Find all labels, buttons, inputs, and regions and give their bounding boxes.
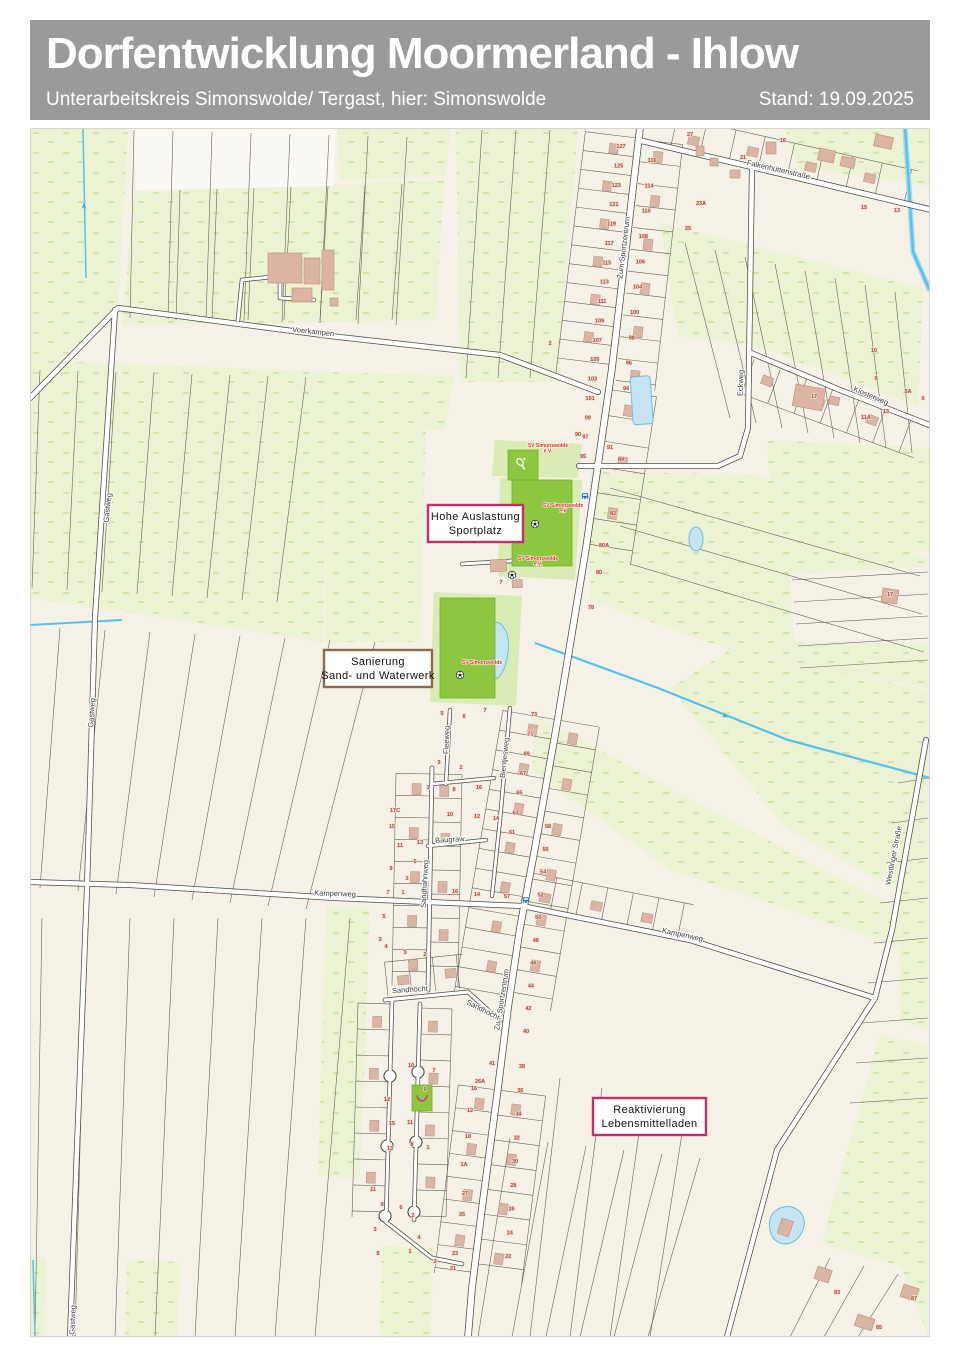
house-number: 32 bbox=[514, 1135, 520, 1141]
pond bbox=[689, 527, 703, 551]
house-number: 10 bbox=[408, 1063, 414, 1069]
house-number: 100 bbox=[630, 310, 639, 316]
house-number: 23A bbox=[696, 201, 706, 207]
house-number: 12 bbox=[384, 1097, 390, 1103]
svg-text:Hohe Auslastung: Hohe Auslastung bbox=[431, 511, 520, 523]
house-number: 3 bbox=[437, 760, 440, 766]
house-number: 83 bbox=[834, 1290, 840, 1296]
house-number: 6 bbox=[462, 714, 465, 720]
svg-text:Sand- und Waterwerk: Sand- und Waterwerk bbox=[321, 670, 435, 682]
svg-text:Sportplatz: Sportplatz bbox=[449, 525, 503, 537]
house-number: 125 bbox=[614, 163, 623, 169]
house-number: 16 bbox=[452, 889, 458, 895]
house-number: 44 bbox=[528, 983, 535, 989]
pond bbox=[630, 376, 653, 425]
house-number: 27 bbox=[462, 1191, 468, 1197]
house-number: 115 bbox=[602, 260, 611, 266]
house-number: 52 bbox=[538, 892, 544, 898]
annotation-lebensmittelladen: ReaktivierungLebensmittelladen bbox=[593, 1098, 706, 1135]
house-number: 80 bbox=[596, 570, 602, 576]
house-number: 6 bbox=[399, 1205, 402, 1211]
house-number: 9 bbox=[874, 376, 877, 382]
house-number: 1 bbox=[426, 785, 429, 791]
street-label: Gastweg bbox=[67, 1305, 78, 1335]
house-number: 11 bbox=[370, 1187, 376, 1193]
house-number: 7 bbox=[432, 1068, 435, 1074]
house-number: 94 bbox=[623, 386, 630, 392]
building bbox=[322, 250, 334, 290]
house-number: 90 bbox=[575, 432, 581, 438]
soccer-ball-icon bbox=[508, 571, 516, 579]
building bbox=[490, 559, 507, 572]
house-number: 24 bbox=[507, 1230, 514, 1236]
house-number: 2 bbox=[411, 1213, 414, 1219]
house-number: 103 bbox=[588, 377, 597, 383]
house-number: 61 bbox=[509, 830, 515, 836]
house-number: 123 bbox=[612, 183, 621, 189]
street-label: Kampenweg bbox=[314, 888, 356, 898]
house-number: 18 bbox=[465, 1134, 471, 1140]
house-number: 12 bbox=[467, 1108, 473, 1114]
house-number: 23 bbox=[452, 1251, 458, 1257]
building bbox=[829, 396, 840, 406]
house-number: 110 bbox=[642, 209, 651, 215]
map-canvas: 1271251231211191171151131111091071051031… bbox=[30, 128, 930, 1337]
house-number: 13 bbox=[883, 409, 889, 415]
house-number: 16 bbox=[476, 785, 482, 791]
house-number: 9 bbox=[423, 1087, 426, 1093]
house-number: 15 bbox=[389, 1121, 395, 1127]
house-number: 12 bbox=[474, 814, 480, 820]
house-number: 22 bbox=[505, 1254, 511, 1260]
svg-text:Sanierung: Sanierung bbox=[351, 656, 405, 668]
house-number: 36 bbox=[517, 1088, 523, 1094]
house-number: 1 bbox=[426, 1145, 429, 1151]
house-number: 5 bbox=[376, 1251, 379, 1257]
map-svg: 1271251231211191171151131111091071051031… bbox=[30, 128, 930, 1337]
house-number: 65 bbox=[516, 791, 522, 797]
house-number: 14 bbox=[474, 892, 481, 898]
house-number: 13 bbox=[417, 840, 423, 846]
house-number: 46 bbox=[530, 961, 536, 967]
house-number: 111 bbox=[598, 299, 607, 305]
house-number: 38 bbox=[519, 1064, 525, 1070]
house-number: 95 bbox=[580, 454, 586, 460]
house-number: 99 bbox=[585, 415, 591, 421]
house-number: 17 bbox=[811, 394, 817, 400]
house-number: 10 bbox=[447, 812, 453, 818]
annotation-waterwerk: SanierungSand- und Waterwerk bbox=[321, 650, 435, 687]
house-number: 7 bbox=[499, 580, 502, 586]
house-number: 21 bbox=[740, 155, 746, 161]
house-number: 2 bbox=[423, 952, 426, 958]
soccer-field-south bbox=[440, 598, 495, 698]
house-number: 58 bbox=[545, 824, 551, 830]
house-number: 101 bbox=[586, 396, 595, 402]
house-number: 73 bbox=[531, 712, 537, 718]
house-number: 5A bbox=[904, 389, 911, 395]
house-number: 7 bbox=[386, 890, 389, 896]
house-number: 10 bbox=[871, 348, 877, 354]
house-number: 27 bbox=[687, 132, 693, 138]
house-number: 127 bbox=[616, 144, 625, 150]
house-number: 114 bbox=[645, 183, 655, 189]
house-number: 67 bbox=[520, 771, 526, 777]
house-number: 50 bbox=[535, 915, 541, 921]
house-number: 113 bbox=[600, 280, 609, 286]
sv-simonswolde-label: SV Simonswolde bbox=[462, 660, 503, 666]
house-number: 82 bbox=[610, 511, 616, 517]
house-number: 5 bbox=[413, 859, 416, 865]
house-number: 2 bbox=[433, 1259, 436, 1265]
svg-text:Lebensmittelladen: Lebensmittelladen bbox=[601, 1118, 697, 1130]
house-number: 14 bbox=[493, 816, 500, 822]
building bbox=[696, 146, 704, 156]
header-date: Stand: 19.09.2025 bbox=[759, 89, 914, 111]
house-number: 106 bbox=[636, 259, 645, 265]
house-number: 78 bbox=[588, 605, 594, 611]
building bbox=[710, 158, 718, 166]
house-number: 3 bbox=[378, 937, 381, 943]
house-number: 108 bbox=[639, 234, 648, 240]
house-number: 8 bbox=[452, 787, 455, 793]
house-number: 48 bbox=[533, 938, 539, 944]
bus-stop-icon bbox=[523, 897, 529, 903]
house-number: 109 bbox=[595, 318, 604, 324]
building bbox=[792, 384, 825, 411]
house-number: 9 bbox=[389, 866, 392, 872]
house-number: 8 bbox=[410, 1142, 413, 1148]
house-number: 41 bbox=[489, 1061, 495, 1067]
house-number: 5 bbox=[440, 711, 443, 717]
house-number: 104 bbox=[633, 285, 643, 291]
house-number: 63 bbox=[513, 810, 519, 816]
house-number: 42 bbox=[525, 1006, 531, 1012]
building bbox=[766, 142, 776, 154]
bus-stop-icon bbox=[582, 493, 588, 499]
house-number: 1A bbox=[460, 1162, 467, 1168]
annotation-sportplatz: Hohe AuslastungSportplatz bbox=[428, 505, 523, 542]
house-number: 56 bbox=[542, 847, 548, 853]
house-number: 17 bbox=[887, 592, 893, 598]
playground-green bbox=[412, 1085, 432, 1111]
building bbox=[330, 298, 338, 306]
house-number: 26 bbox=[508, 1207, 514, 1213]
house-number: 97 bbox=[582, 435, 588, 441]
house-number: 71 bbox=[527, 732, 533, 738]
house-number: 13 bbox=[387, 1146, 393, 1152]
house-number: 116 bbox=[648, 158, 657, 164]
house-number: 25 bbox=[685, 226, 691, 232]
house-number: 16 bbox=[780, 138, 786, 144]
house-number: 84 bbox=[618, 457, 625, 463]
house-number: 121 bbox=[609, 202, 618, 208]
house-number: 69 bbox=[524, 751, 530, 757]
street-label: Fleeweg bbox=[442, 726, 452, 755]
house-number: 25 bbox=[459, 1212, 465, 1218]
soccer-ball-icon bbox=[456, 671, 464, 679]
house-number: 15 bbox=[389, 824, 395, 830]
house-number: 15 bbox=[861, 205, 867, 211]
house-number: 57 bbox=[504, 894, 510, 900]
house-number: 11 bbox=[397, 843, 403, 849]
house-number: 107 bbox=[593, 338, 602, 344]
house-number: 11A bbox=[861, 415, 871, 421]
house-number: 3 bbox=[403, 950, 406, 956]
building bbox=[292, 288, 312, 302]
house-number: 105 bbox=[590, 357, 599, 363]
house-number: 3 bbox=[405, 876, 408, 882]
house-number: 30 bbox=[512, 1159, 518, 1165]
building bbox=[512, 579, 522, 588]
house-number: 80A bbox=[599, 543, 609, 549]
building bbox=[304, 258, 320, 284]
house-number: 54 bbox=[540, 870, 547, 876]
house-number: 1 bbox=[408, 1249, 411, 1255]
house-number: 13 bbox=[894, 208, 900, 214]
house-number: 40 bbox=[523, 1029, 529, 1035]
page-title: Dorfentwicklung Moormerland - Ihlow bbox=[46, 28, 914, 80]
house-number: 2 bbox=[548, 341, 551, 347]
house-number: 17C bbox=[390, 808, 400, 814]
house-number: 87 bbox=[911, 1296, 917, 1302]
soccer-ball-icon bbox=[531, 520, 539, 528]
house-number: 3 bbox=[373, 1227, 376, 1233]
header-banner: Dorfentwicklung Moormerland - Ihlow Unte… bbox=[30, 20, 930, 120]
house-number: 98 bbox=[629, 335, 635, 341]
svg-text:Reaktivierung: Reaktivierung bbox=[613, 1104, 685, 1116]
house-number: 16 bbox=[471, 1086, 477, 1092]
house-number: 117 bbox=[605, 241, 614, 247]
house-number: 96 bbox=[626, 361, 632, 367]
house-number: 119 bbox=[607, 222, 616, 228]
house-number: 9 bbox=[380, 1202, 383, 1208]
house-number: 91 bbox=[607, 445, 613, 451]
house-number: 1 bbox=[401, 890, 404, 896]
house-number: 26A bbox=[475, 1079, 485, 1085]
house-number: 85 bbox=[876, 1325, 882, 1331]
street-label: Eckweg bbox=[736, 370, 746, 397]
house-number: 21 bbox=[450, 1266, 456, 1272]
house-number: 34 bbox=[515, 1112, 522, 1118]
header-subtitle: Unterarbeitskreis Simonswolde/ Tergast, … bbox=[46, 89, 546, 111]
house-number: 28 bbox=[510, 1183, 516, 1189]
house-number: 7 bbox=[483, 708, 486, 714]
building bbox=[730, 170, 740, 178]
building bbox=[268, 253, 302, 283]
house-number: 5 bbox=[382, 914, 385, 920]
house-number: 11 bbox=[407, 1120, 413, 1126]
house-number: 6 bbox=[921, 396, 924, 402]
house-number: 2 bbox=[459, 765, 462, 771]
